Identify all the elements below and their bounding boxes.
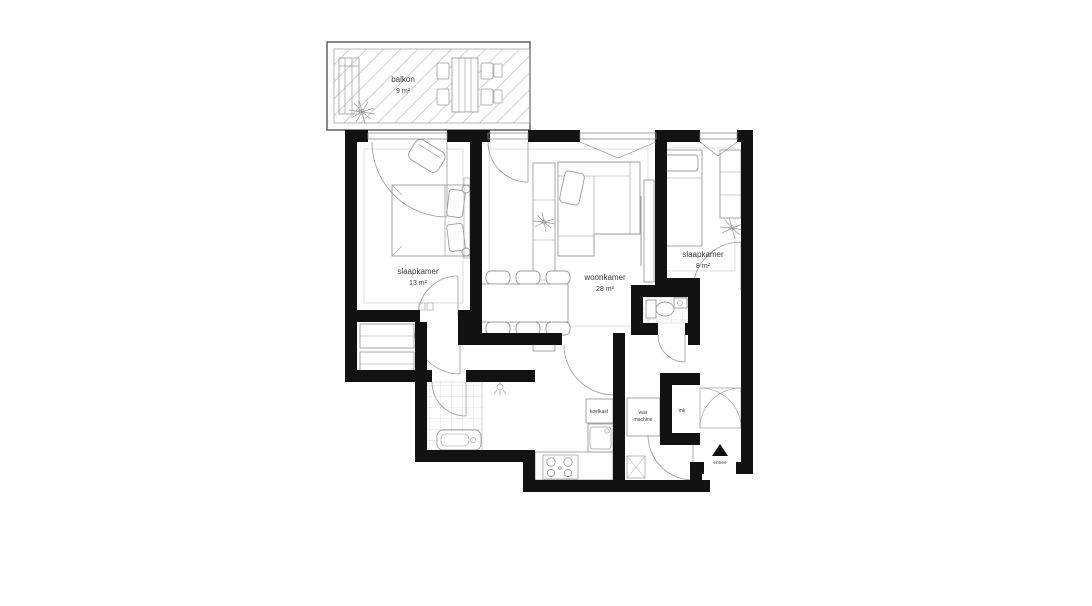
counter-run: [535, 452, 613, 480]
washbasin-icon: [437, 430, 481, 450]
balcony-side-table: [494, 64, 502, 77]
toilet-bowl: [656, 302, 674, 316]
counter-return: [588, 424, 613, 452]
bed-pillow: [446, 189, 465, 218]
bed-pillow: [664, 155, 698, 171]
floor-plan-drawing: balkon 9 m² slaapkamer 13 m² woonkamer 2…: [0, 0, 1092, 606]
nightstand: [462, 248, 470, 256]
double-bed-icon: [392, 178, 470, 258]
balcony-zone: [327, 42, 530, 130]
dining-chair: [516, 271, 540, 284]
balcony-chair: [437, 63, 449, 79]
hall-cabinet-icon: [627, 456, 645, 478]
bed-pillow: [446, 223, 465, 252]
dining-chair: [546, 271, 570, 284]
washer-label-line1: was: [639, 410, 648, 416]
washer-label-line2: machine: [634, 417, 653, 423]
balcony-name-label: balkon: [391, 75, 415, 84]
sink-basin: [674, 298, 687, 308]
balcony-chair: [481, 63, 493, 79]
balcony-chair: [481, 89, 493, 105]
floor-plan-canvas: balkon 9 m² slaapkamer 13 m² woonkamer 2…: [0, 0, 1092, 606]
dining-table: [480, 284, 568, 322]
bedroom1-name-label: slaapkamer: [397, 267, 439, 276]
shower-rose: [497, 384, 503, 390]
meter-cupboard-label: mk: [679, 408, 686, 414]
dining-chair: [486, 271, 510, 284]
wc-sink-icon: [674, 298, 687, 308]
bedroom1-area-label: 13 m²: [409, 280, 428, 287]
living-name-label: woonkamer: [583, 273, 626, 282]
tv-board: [644, 180, 654, 282]
basin-outer: [437, 430, 481, 450]
bedroom2-area-label: 8 m²: [696, 263, 711, 270]
switch-box: [427, 303, 433, 310]
fridge-label: koelkast: [590, 409, 609, 415]
balcony-chair: [437, 89, 449, 105]
wardrobe-body: [720, 150, 741, 218]
balcony-area-label: 9 m²: [396, 88, 411, 95]
toilet-icon: [646, 300, 674, 318]
entrance-label: entree: [713, 460, 726, 465]
bedroom2-name-label: slaapkamer: [682, 250, 724, 259]
bedroom2-wardrobe-icon: [720, 150, 741, 218]
entry-closet-icon: [700, 388, 741, 428]
nightstand: [462, 185, 470, 193]
living-area-label: 28 m²: [596, 286, 615, 293]
toilet-tank: [646, 300, 656, 318]
closet-frame: [700, 388, 741, 428]
balcony-side-table: [494, 90, 502, 103]
dining-set-icon: [480, 271, 570, 335]
